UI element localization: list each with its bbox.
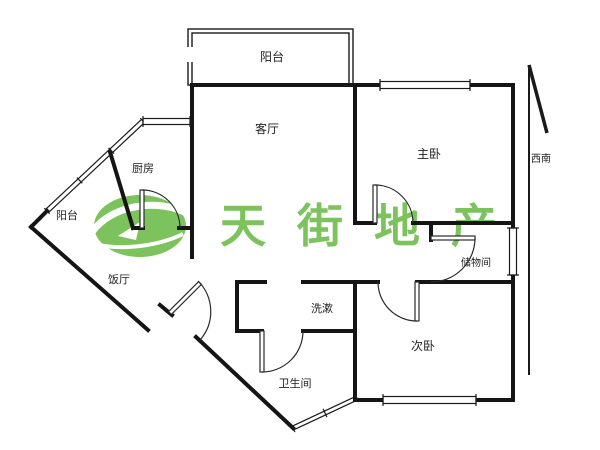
label-bathroom: 卫生间 — [279, 376, 312, 390]
floor-plan-canvas: 天街地产 — [0, 0, 600, 450]
compass-label: 西南 — [531, 152, 551, 165]
window-master-top — [380, 79, 470, 91]
door-entry — [169, 281, 211, 340]
balcony-top-left-gap — [185, 47, 194, 62]
label-wash-area: 洗漱 — [311, 302, 333, 315]
door-bathroom — [260, 331, 303, 372]
walls — [31, 85, 513, 428]
label-storage-room: 储物间 — [461, 256, 491, 269]
window-second-bedroom-bottom — [383, 394, 476, 406]
window-entry-diagonal — [291, 394, 359, 432]
wall-balcony-left-cap — [31, 211, 47, 227]
compass: 西南 — [529, 65, 551, 375]
compass-arrow-icon — [529, 65, 547, 133]
window-kitchen-top — [143, 116, 191, 127]
label-kitchen: 厨房 — [132, 162, 154, 175]
label-dining-room: 饭厅 — [108, 273, 130, 286]
door-second-bedroom — [378, 282, 419, 321]
label-master-bedroom: 主卧 — [417, 147, 441, 161]
label-balcony-top: 阳台 — [260, 49, 284, 64]
floor-plan: 天街地产 — [0, 0, 600, 450]
label-living-room: 客厅 — [255, 121, 279, 136]
label-second-bedroom: 次卧 — [411, 339, 435, 353]
watermark: 天街地产 — [92, 195, 528, 257]
label-balcony-left: 阳台 — [56, 208, 78, 222]
